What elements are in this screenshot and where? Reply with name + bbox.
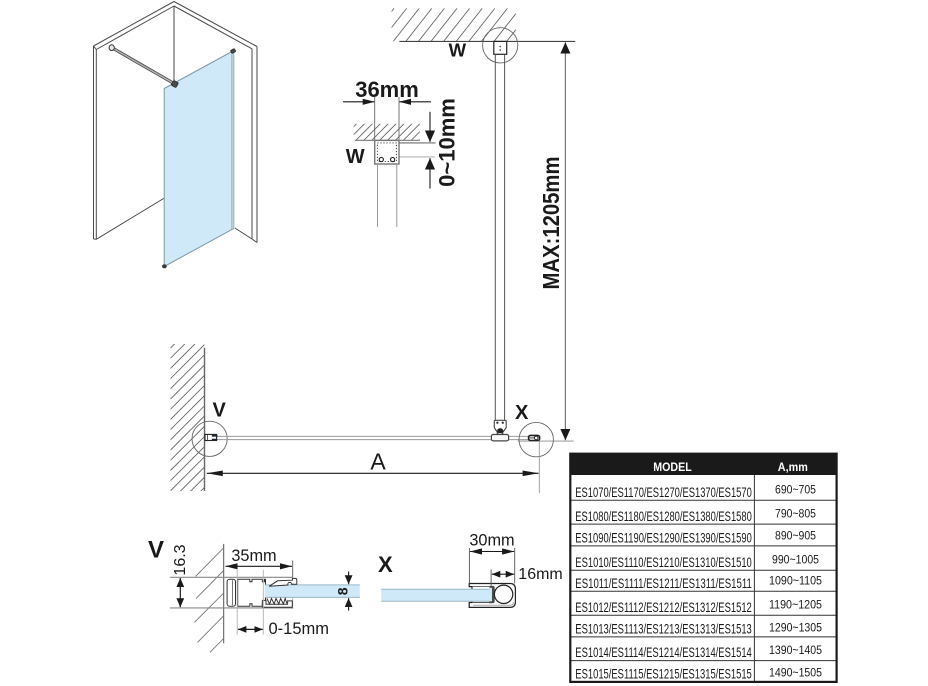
svg-text:W: W [449, 39, 467, 60]
svg-text:990~1005: 990~1005 [772, 552, 819, 566]
svg-text:A: A [370, 449, 386, 475]
svg-text:V: V [148, 537, 164, 564]
svg-text:1390~1405: 1390~1405 [769, 643, 822, 657]
svg-text:0-15mm: 0-15mm [269, 620, 330, 638]
svg-text:ES1013/ES1113/ES1213/ES1313/ES: ES1013/ES1113/ES1213/ES1313/ES1513 [575, 622, 752, 637]
svg-text:30mm: 30mm [469, 532, 514, 550]
svg-text:890~905: 890~905 [775, 528, 816, 542]
svg-text:1490~1505: 1490~1505 [769, 665, 822, 679]
svg-text:36mm: 36mm [355, 77, 419, 102]
svg-text:1290~1305: 1290~1305 [769, 620, 822, 634]
svg-text:ES1010/ES1110/ES1210/ES1310/ES: ES1010/ES1110/ES1210/ES1310/ES1510 [575, 555, 752, 570]
svg-text:MAX:1205mm: MAX:1205mm [538, 157, 564, 290]
svg-text:ES1012/ES1112/ES1212/ES1312/ES: ES1012/ES1112/ES1212/ES1312/ES1512 [575, 600, 752, 615]
svg-text:MODEL: MODEL [653, 462, 692, 474]
svg-text:W: W [346, 146, 365, 168]
svg-text:0~10mm: 0~10mm [435, 98, 460, 187]
svg-text:X: X [515, 402, 529, 424]
svg-text:A,mm: A,mm [778, 462, 808, 474]
svg-text:X: X [378, 552, 393, 577]
svg-text:8: 8 [335, 587, 351, 595]
svg-text:16mm: 16mm [518, 566, 562, 583]
svg-text:ES1011/ES1111/ES1211/ES1311/ES: ES1011/ES1111/ES1211/ES1311/ES1511 [575, 576, 752, 591]
svg-text:1190~1205: 1190~1205 [769, 597, 822, 611]
svg-text:ES1070/ES1170/ES1270/ES1370/ES: ES1070/ES1170/ES1270/ES1370/ES1570 [575, 485, 752, 500]
svg-text:ES1015/ES1115/ES1215/ES1315/ES: ES1015/ES1115/ES1215/ES1315/ES1515 [575, 667, 752, 682]
svg-text:35mm: 35mm [231, 547, 276, 565]
svg-text:ES1090/ES1190/ES1290/ES1390/ES: ES1090/ES1190/ES1290/ES1390/ES1590 [575, 531, 752, 546]
svg-text:690~705: 690~705 [775, 482, 816, 496]
svg-text:16.3: 16.3 [172, 544, 189, 575]
svg-text:1090~1105: 1090~1105 [769, 573, 822, 587]
svg-text:790~805: 790~805 [775, 506, 816, 520]
svg-text:V: V [213, 399, 227, 421]
svg-text:ES1080/ES1180/ES1280/ES1380/ES: ES1080/ES1180/ES1280/ES1380/ES1580 [575, 509, 752, 524]
svg-text:ES1014/ES1114/ES1214/ES1314/ES: ES1014/ES1114/ES1214/ES1314/ES1514 [575, 645, 752, 660]
